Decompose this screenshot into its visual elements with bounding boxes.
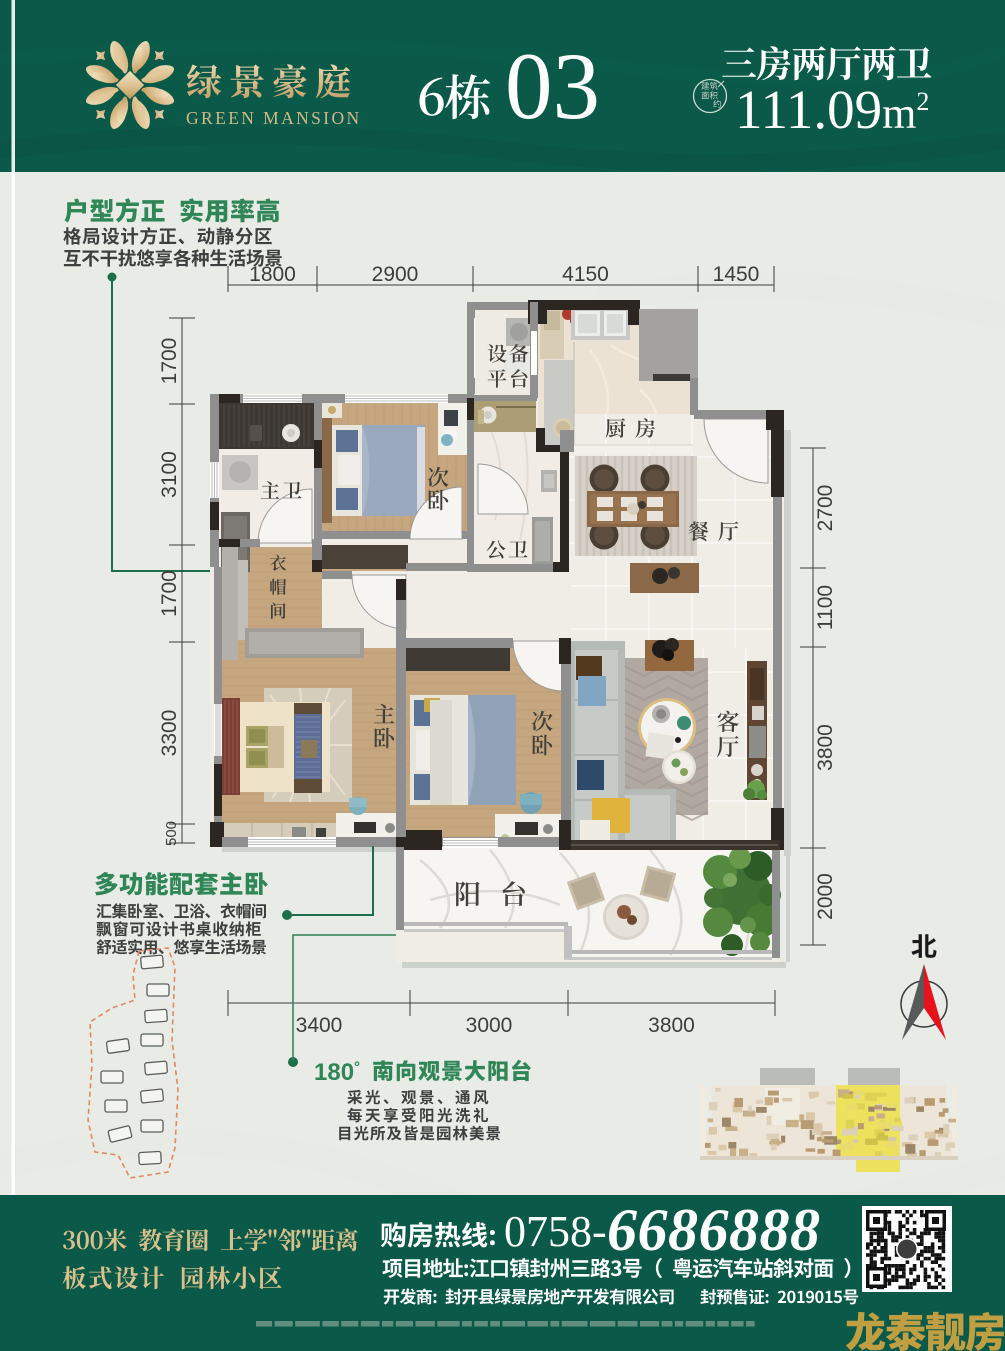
svg-text:2700: 2700 <box>814 485 837 532</box>
svg-text:3000: 3000 <box>466 1014 513 1037</box>
svg-text:3800: 3800 <box>648 1014 695 1037</box>
svg-text:1700: 1700 <box>158 570 181 617</box>
svg-text:2000: 2000 <box>814 873 837 920</box>
svg-text:180°: 180° <box>314 1059 360 1086</box>
svg-text:500: 500 <box>163 821 180 846</box>
svg-text:1800: 1800 <box>249 263 296 286</box>
svg-text:1700: 1700 <box>158 338 181 385</box>
svg-text:3300: 3300 <box>158 710 181 757</box>
svg-text:2900: 2900 <box>372 263 419 286</box>
svg-text:GREEN MANSION: GREEN MANSION <box>186 108 362 128</box>
svg-text:0758-: 0758- <box>504 1207 607 1256</box>
svg-text:3400: 3400 <box>296 1014 343 1037</box>
svg-text:3100: 3100 <box>158 451 181 498</box>
svg-text:03: 03 <box>505 33 600 139</box>
svg-text:6686888: 6686888 <box>607 1197 821 1263</box>
svg-text:3800: 3800 <box>814 724 837 771</box>
svg-text:111.09m2: 111.09m2 <box>735 79 929 140</box>
svg-text:1450: 1450 <box>713 263 760 286</box>
svg-text:1100: 1100 <box>814 585 837 630</box>
svg-text:4150: 4150 <box>562 263 609 286</box>
